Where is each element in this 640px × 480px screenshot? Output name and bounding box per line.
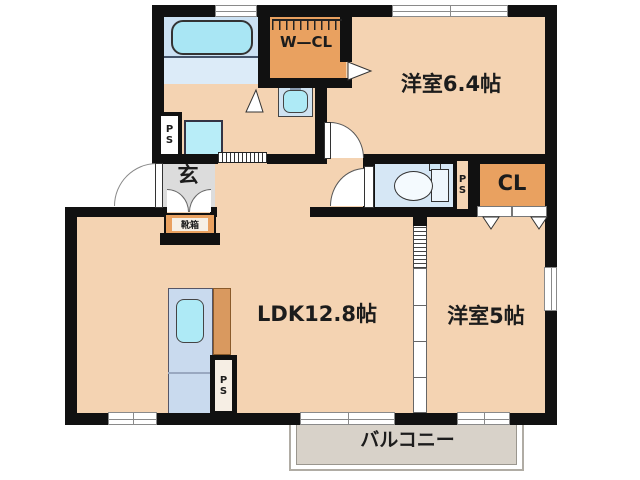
pipe-space-label: PS — [165, 124, 175, 146]
pipe-space-kitchen: PS — [210, 355, 237, 416]
entrance-door-leaf — [155, 163, 163, 208]
toilet-door-leaf — [364, 166, 374, 208]
walk-in-closet-label: W—CL — [266, 34, 346, 51]
kitchen-unit-divider — [168, 372, 213, 374]
genkan-label: 玄 — [168, 163, 208, 187]
shoe-cabinet-label: 靴箱 — [181, 218, 199, 231]
floor-plan: PS PS PS 靴箱 W—CL 洋室6.4帖 玄 CL LDK12.8帖 洋室… — [0, 0, 640, 480]
hanger-rail-icon — [272, 19, 342, 30]
closet-folding-door-right — [512, 206, 547, 217]
washbasin-bowl — [283, 90, 308, 113]
balcony-label: バルコニー — [350, 430, 465, 452]
partition-sliding-doors — [413, 268, 427, 413]
pipe-space-label: PS — [219, 375, 229, 397]
wall-hall-ldk-left — [65, 207, 167, 217]
window-bathroom-top — [215, 5, 257, 17]
toilet-tank — [431, 169, 449, 202]
window-west-room-6-4-top — [392, 5, 508, 17]
pipe-space-washroom: PS — [157, 112, 182, 158]
kitchen-sink — [176, 299, 204, 343]
window-ldk-bottom-left — [108, 412, 157, 425]
shoe-cabinet: 靴箱 — [164, 213, 216, 235]
pipe-space-toilet: PS — [453, 157, 472, 213]
wall-left-ldk — [65, 207, 77, 425]
window-ldk-balcony — [300, 412, 395, 425]
west-room-5-label: 洋室5帖 — [436, 304, 536, 328]
entrance-door-arc — [114, 163, 157, 206]
toilet-bowl — [394, 171, 433, 201]
wall-washroom-bottom-right — [267, 154, 327, 164]
washroom-sliding-door — [218, 152, 267, 163]
closet-label: CL — [488, 171, 536, 195]
shoe-cabinet-label-pill: 靴箱 — [172, 218, 208, 231]
west-room-6-4-label: 洋室6.4帖 — [390, 72, 512, 96]
window-west-room-5-right — [544, 267, 557, 311]
west-room-6-4-door-leaf — [324, 122, 331, 159]
wall-partition-stub — [413, 207, 427, 226]
bathroom-divider-line — [163, 56, 258, 58]
wall-wcl-bottom — [258, 78, 352, 88]
closet-folding-door-left — [477, 206, 512, 217]
partition-hatch — [413, 226, 427, 268]
window-west-room-5-balcony — [457, 412, 510, 425]
pipe-space-label: PS — [458, 174, 468, 196]
kitchen-counter-strip — [213, 288, 231, 355]
bathtub — [171, 20, 253, 55]
ldk-label: LDK12.8帖 — [252, 302, 382, 326]
